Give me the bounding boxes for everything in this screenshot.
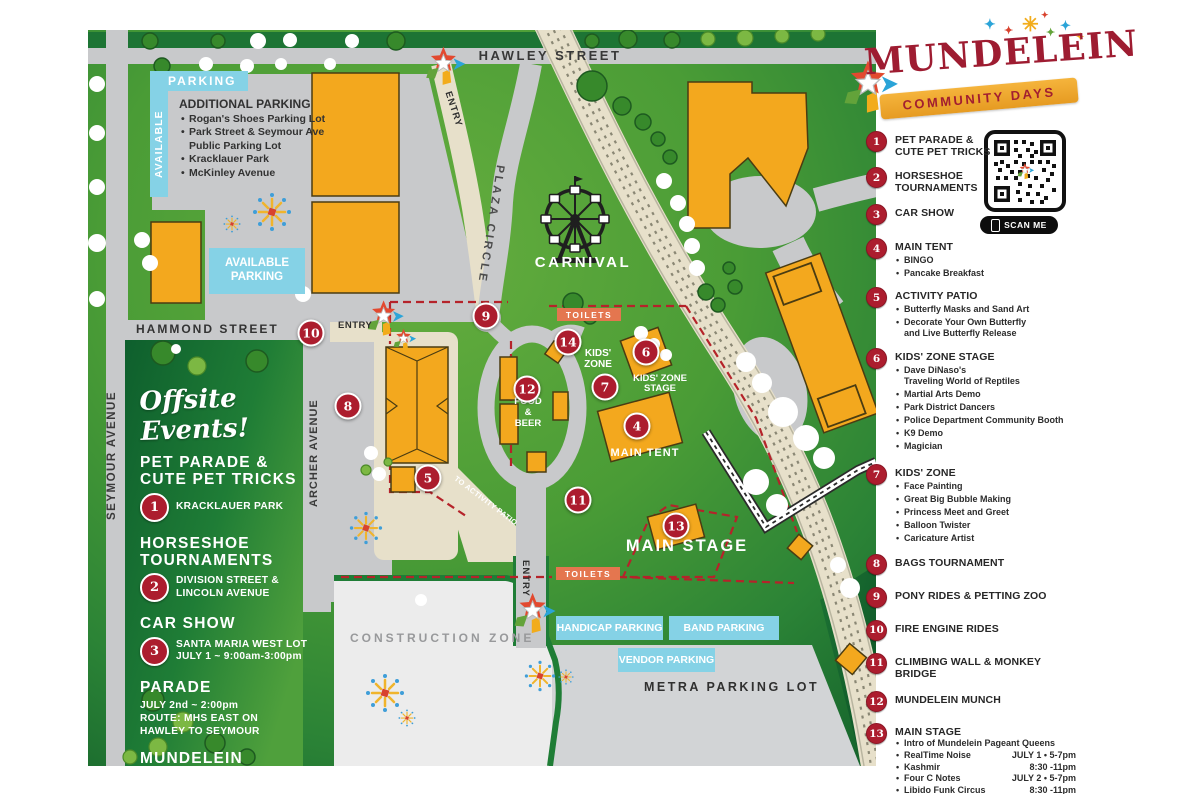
legend-item-9: 9 PONY RIDES & PETTING ZOO xyxy=(866,587,1084,608)
street-label-archer: ARCHER AVENUE xyxy=(308,378,326,528)
toilets-sign-north: TOILETS xyxy=(557,308,621,321)
available-parking-box: AVAILABLE PARKING xyxy=(209,248,305,294)
legend-item-5: 5 ACTIVITY PATIO Butterfly Masks and San… xyxy=(866,287,1084,339)
offsite-badge-3: 3 xyxy=(140,637,169,666)
legend-item-13: 13 MAIN STAGE Intro of Mundelein Pageant… xyxy=(866,723,1084,794)
legend-item-12: 12 MUNDELEIN MUNCH xyxy=(866,691,1084,712)
offsite-event-title: CAR SHOW xyxy=(140,615,310,632)
offsite-event-title: MUNDELEIN PARK DISTRICT FREEDOM CLASSIC xyxy=(140,750,310,794)
offsite-event-title: HORSESHOETOURNAMENTS xyxy=(140,535,310,570)
legend-item-1: 1 PET PARADE &CUTE PET TRICKS xyxy=(866,131,1084,158)
additional-parking-note: ADDITIONAL PARKING Rogan's Shoes Parking… xyxy=(179,97,367,180)
offsite-badge-2: 2 xyxy=(140,573,169,602)
map-marker-10: 10 xyxy=(298,320,325,347)
handicap-parking-sign: HANDICAP PARKING xyxy=(556,616,663,640)
map-marker-8: 8 xyxy=(335,393,362,420)
legend-item-11: 11 CLIMBING WALL & MONKEY BRIDGE xyxy=(866,653,1084,680)
toilets-sign-south: TOILETS xyxy=(556,567,620,580)
building xyxy=(312,202,399,293)
metra-lot-label: METRA PARKING LOT xyxy=(644,680,819,694)
offsite-event-detail: 2 DIVISION STREET &LINCOLN AVENUE xyxy=(140,573,310,602)
offsite-badge-1: 1 xyxy=(140,493,169,522)
legend-item-6: 6 KIDS' ZONE STAGE Dave DiNaso's Traveli… xyxy=(866,348,1084,452)
offsite-events-panel: Offsite Events! PET PARADE &CUTE PET TRI… xyxy=(140,384,310,794)
entry-label-south: ENTRY xyxy=(520,560,531,602)
entry-label-hammond: ENTRY xyxy=(338,320,372,331)
main-stage-label: MAIN STAGE xyxy=(612,537,762,556)
offsite-event-title: PARADE xyxy=(140,679,310,696)
map-marker-14: 14 xyxy=(555,329,582,356)
main-tent-label: MAIN TENT xyxy=(600,447,690,459)
logo-ribbon: COMMUNITY DAYS xyxy=(879,77,1078,119)
star-decoration-icon: ✦ xyxy=(984,16,996,33)
map-marker-6: 6 xyxy=(633,339,660,366)
parking-banner-vertical: AVAILABLE xyxy=(150,91,168,197)
construction-zone-label: CONSTRUCTION ZONE xyxy=(350,631,534,645)
map-marker-4: 4 xyxy=(624,413,651,440)
offsite-event-detail: JULY 2nd ~ 2:00pm ROUTE: MHS EAST ON HAW… xyxy=(140,700,310,738)
event-logo: ✦ ✦ ✳ ✦ ✦ ✦ ✦ MUNDELEIN COMMUNITY DAYS xyxy=(836,20,1096,136)
street-label-seymour: SEYMOUR AVENUE xyxy=(106,368,126,543)
star-decoration-icon: ✦ xyxy=(1041,10,1049,21)
offsite-event-title: PET PARADE &CUTE PET TRICKS xyxy=(140,454,310,489)
map-marker-12: 12 xyxy=(514,376,541,403)
legend-item-10: 10 FIRE ENGINE RIDES xyxy=(866,620,1084,641)
vendor-parking-sign: VENDOR PARKING xyxy=(618,648,715,672)
offsite-event-detail: 3 SANTA MARIA WEST LOTJULY 1 ~ 9:00am-3:… xyxy=(140,637,310,666)
legend-item-4: 4 MAIN TENT BINGO Pancake Breakfast xyxy=(866,238,1084,279)
carnival-label: CARNIVAL xyxy=(523,254,643,271)
kids-zone-label: KIDS' ZONE xyxy=(574,349,622,370)
map-marker-7: 7 xyxy=(592,374,619,401)
kids-zone-stage-label: KIDS' ZONE STAGE xyxy=(622,374,698,395)
legend-item-2: 2 HORSESHOETOURNAMENTS xyxy=(866,167,1084,194)
event-map-flyer: HAWLEY STREET SEYMOUR AVENUE HAMMOND STR… xyxy=(0,0,1200,794)
map-marker-13: 13 xyxy=(663,513,690,540)
street-label-hawley: HAWLEY STREET xyxy=(460,48,640,63)
map-marker-5: 5 xyxy=(415,465,442,492)
offsite-event-detail: 1 KRACKLAUER PARK xyxy=(140,493,310,522)
parking-banner-horizontal: PARKING xyxy=(150,71,248,91)
offsite-title: Offsite Events! xyxy=(139,381,311,447)
legend-item-3: 3 CAR SHOW xyxy=(866,204,1084,225)
map-marker-9: 9 xyxy=(473,303,500,330)
building xyxy=(151,222,201,303)
legend-panel: 1 PET PARADE &CUTE PET TRICKS 2 HORSESHO… xyxy=(866,131,1084,794)
band-parking-sign: BAND PARKING xyxy=(669,616,779,640)
street-label-hammond: HAMMOND STREET xyxy=(136,322,279,336)
legend-item-8: 8 BAGS TOURNAMENT xyxy=(866,554,1084,575)
map-marker-11: 11 xyxy=(565,487,592,514)
legend-item-7: 7 KIDS' ZONE Face Painting Great Big Bub… xyxy=(866,464,1084,544)
food-stall xyxy=(527,452,546,472)
food-stall xyxy=(553,392,568,420)
